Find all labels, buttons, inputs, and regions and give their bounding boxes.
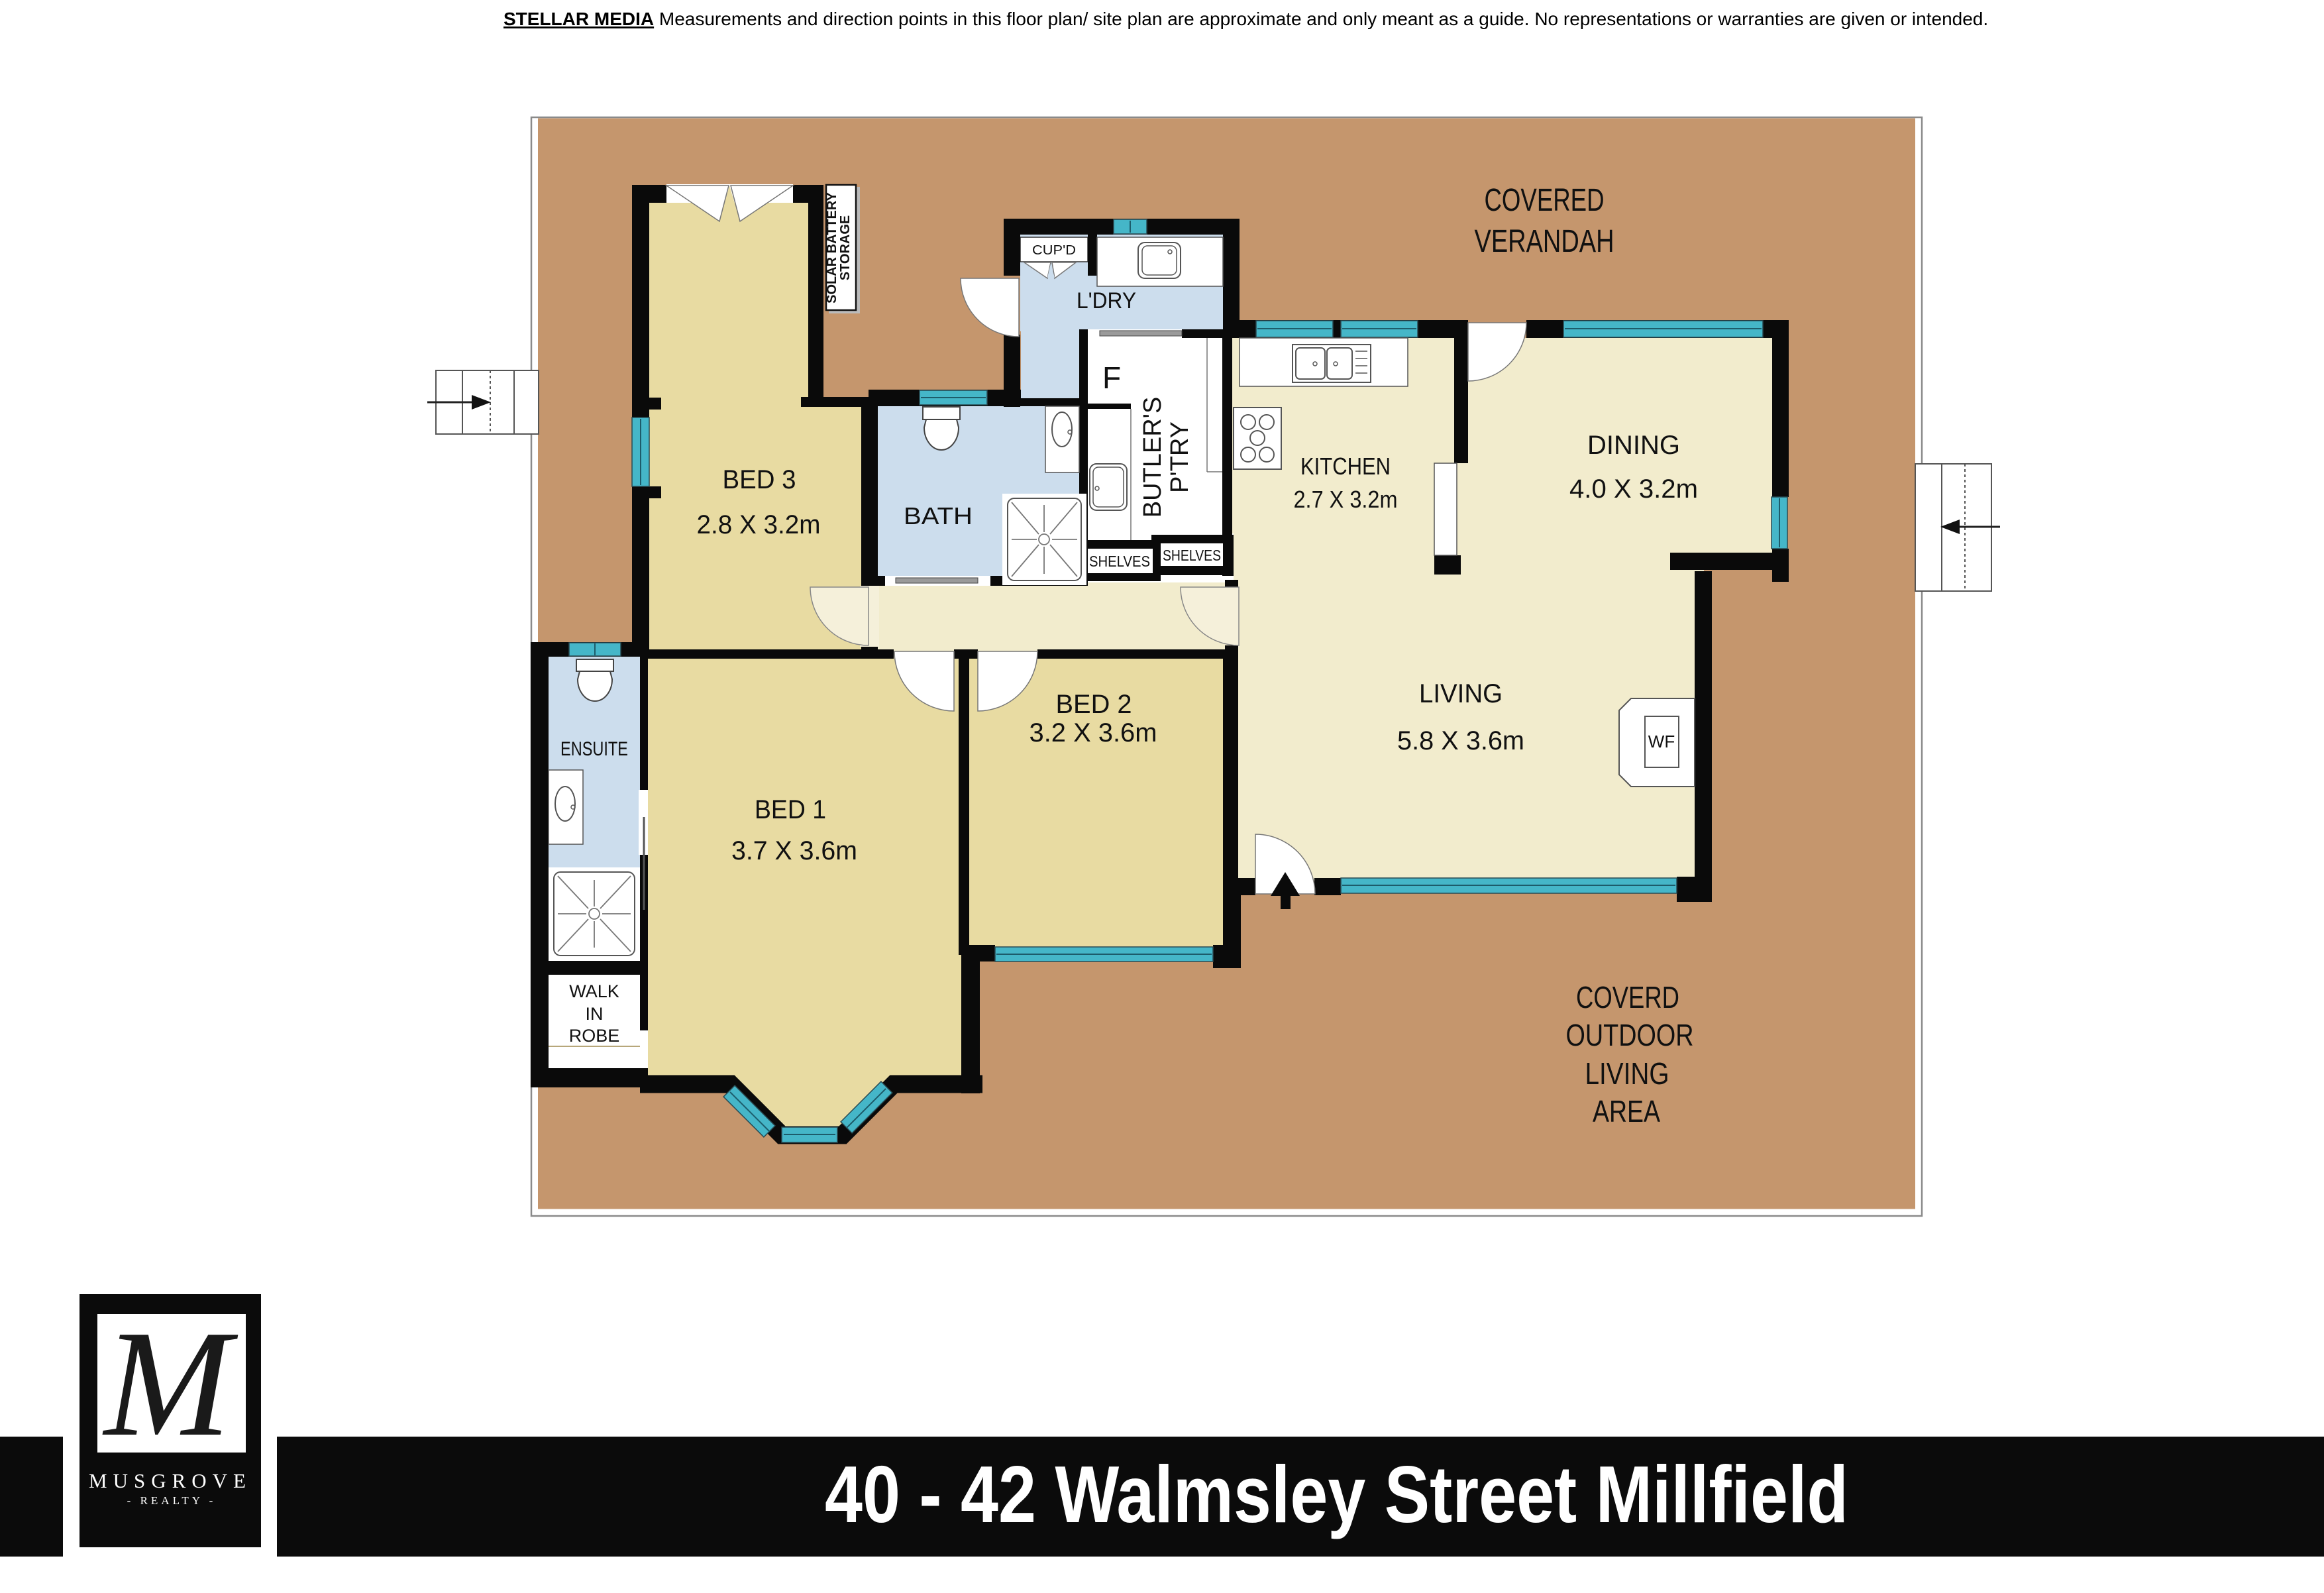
svg-text:2.8 X 3.2m: 2.8 X 3.2m bbox=[697, 510, 821, 539]
svg-text:VERANDAH: VERANDAH bbox=[1475, 224, 1614, 259]
svg-text:LIVING: LIVING bbox=[1419, 679, 1503, 708]
svg-text:3.2 X 3.6m: 3.2 X 3.6m bbox=[1030, 718, 1157, 747]
svg-text:DINING: DINING bbox=[1587, 431, 1680, 460]
svg-text:F: F bbox=[1102, 360, 1121, 395]
svg-text:STORAGE: STORAGE bbox=[838, 215, 853, 281]
svg-text:4.0 X 3.2m: 4.0 X 3.2m bbox=[1569, 474, 1698, 504]
svg-text:3.7 X 3.6m: 3.7 X 3.6m bbox=[731, 836, 857, 865]
svg-text:P'TRY: P'TRY bbox=[1166, 421, 1194, 493]
svg-text:COVERED: COVERED bbox=[1485, 183, 1605, 218]
svg-text:SOLAR BATTERY: SOLAR BATTERY bbox=[825, 192, 839, 303]
svg-text:SHELVES: SHELVES bbox=[1163, 547, 1221, 564]
svg-text:IN: IN bbox=[586, 1004, 604, 1024]
svg-text:OUTDOOR: OUTDOOR bbox=[1566, 1018, 1694, 1052]
svg-text:BATH: BATH bbox=[904, 502, 973, 529]
svg-text:KITCHEN: KITCHEN bbox=[1300, 453, 1391, 480]
svg-text:ROBE: ROBE bbox=[569, 1026, 620, 1046]
svg-text:MUSGROVE: MUSGROVE bbox=[89, 1469, 252, 1492]
svg-text:5.8 X 3.6m: 5.8 X 3.6m bbox=[1397, 726, 1524, 755]
svg-text:LIVING: LIVING bbox=[1585, 1056, 1669, 1091]
svg-text:AREA: AREA bbox=[1593, 1094, 1660, 1128]
svg-text:BUTLER'S: BUTLER'S bbox=[1139, 397, 1167, 518]
svg-text:L'DRY: L'DRY bbox=[1077, 288, 1136, 313]
svg-text:M: M bbox=[102, 1299, 238, 1468]
svg-text:STELLAR MEDIA Measurements and: STELLAR MEDIA Measurements and direction… bbox=[503, 9, 1988, 29]
svg-text:CUP'D: CUP'D bbox=[1032, 243, 1076, 258]
svg-text:BED 3: BED 3 bbox=[723, 465, 796, 494]
svg-text:COVERD: COVERD bbox=[1576, 980, 1679, 1015]
svg-text:WF: WF bbox=[1648, 732, 1675, 751]
svg-text:ENSUITE: ENSUITE bbox=[560, 738, 628, 760]
svg-text:WALK: WALK bbox=[569, 981, 619, 1001]
svg-text:BED 1: BED 1 bbox=[755, 795, 826, 824]
svg-text:SHELVES: SHELVES bbox=[1089, 553, 1150, 570]
svg-text:BED 2: BED 2 bbox=[1056, 690, 1132, 719]
svg-text:2.7 X 3.2m: 2.7 X 3.2m bbox=[1294, 486, 1398, 513]
svg-text:40 - 42 Walmsley Street Millfi: 40 - 42 Walmsley Street Millfield bbox=[825, 1449, 1848, 1539]
svg-text:- REALTY -: - REALTY - bbox=[127, 1494, 217, 1507]
